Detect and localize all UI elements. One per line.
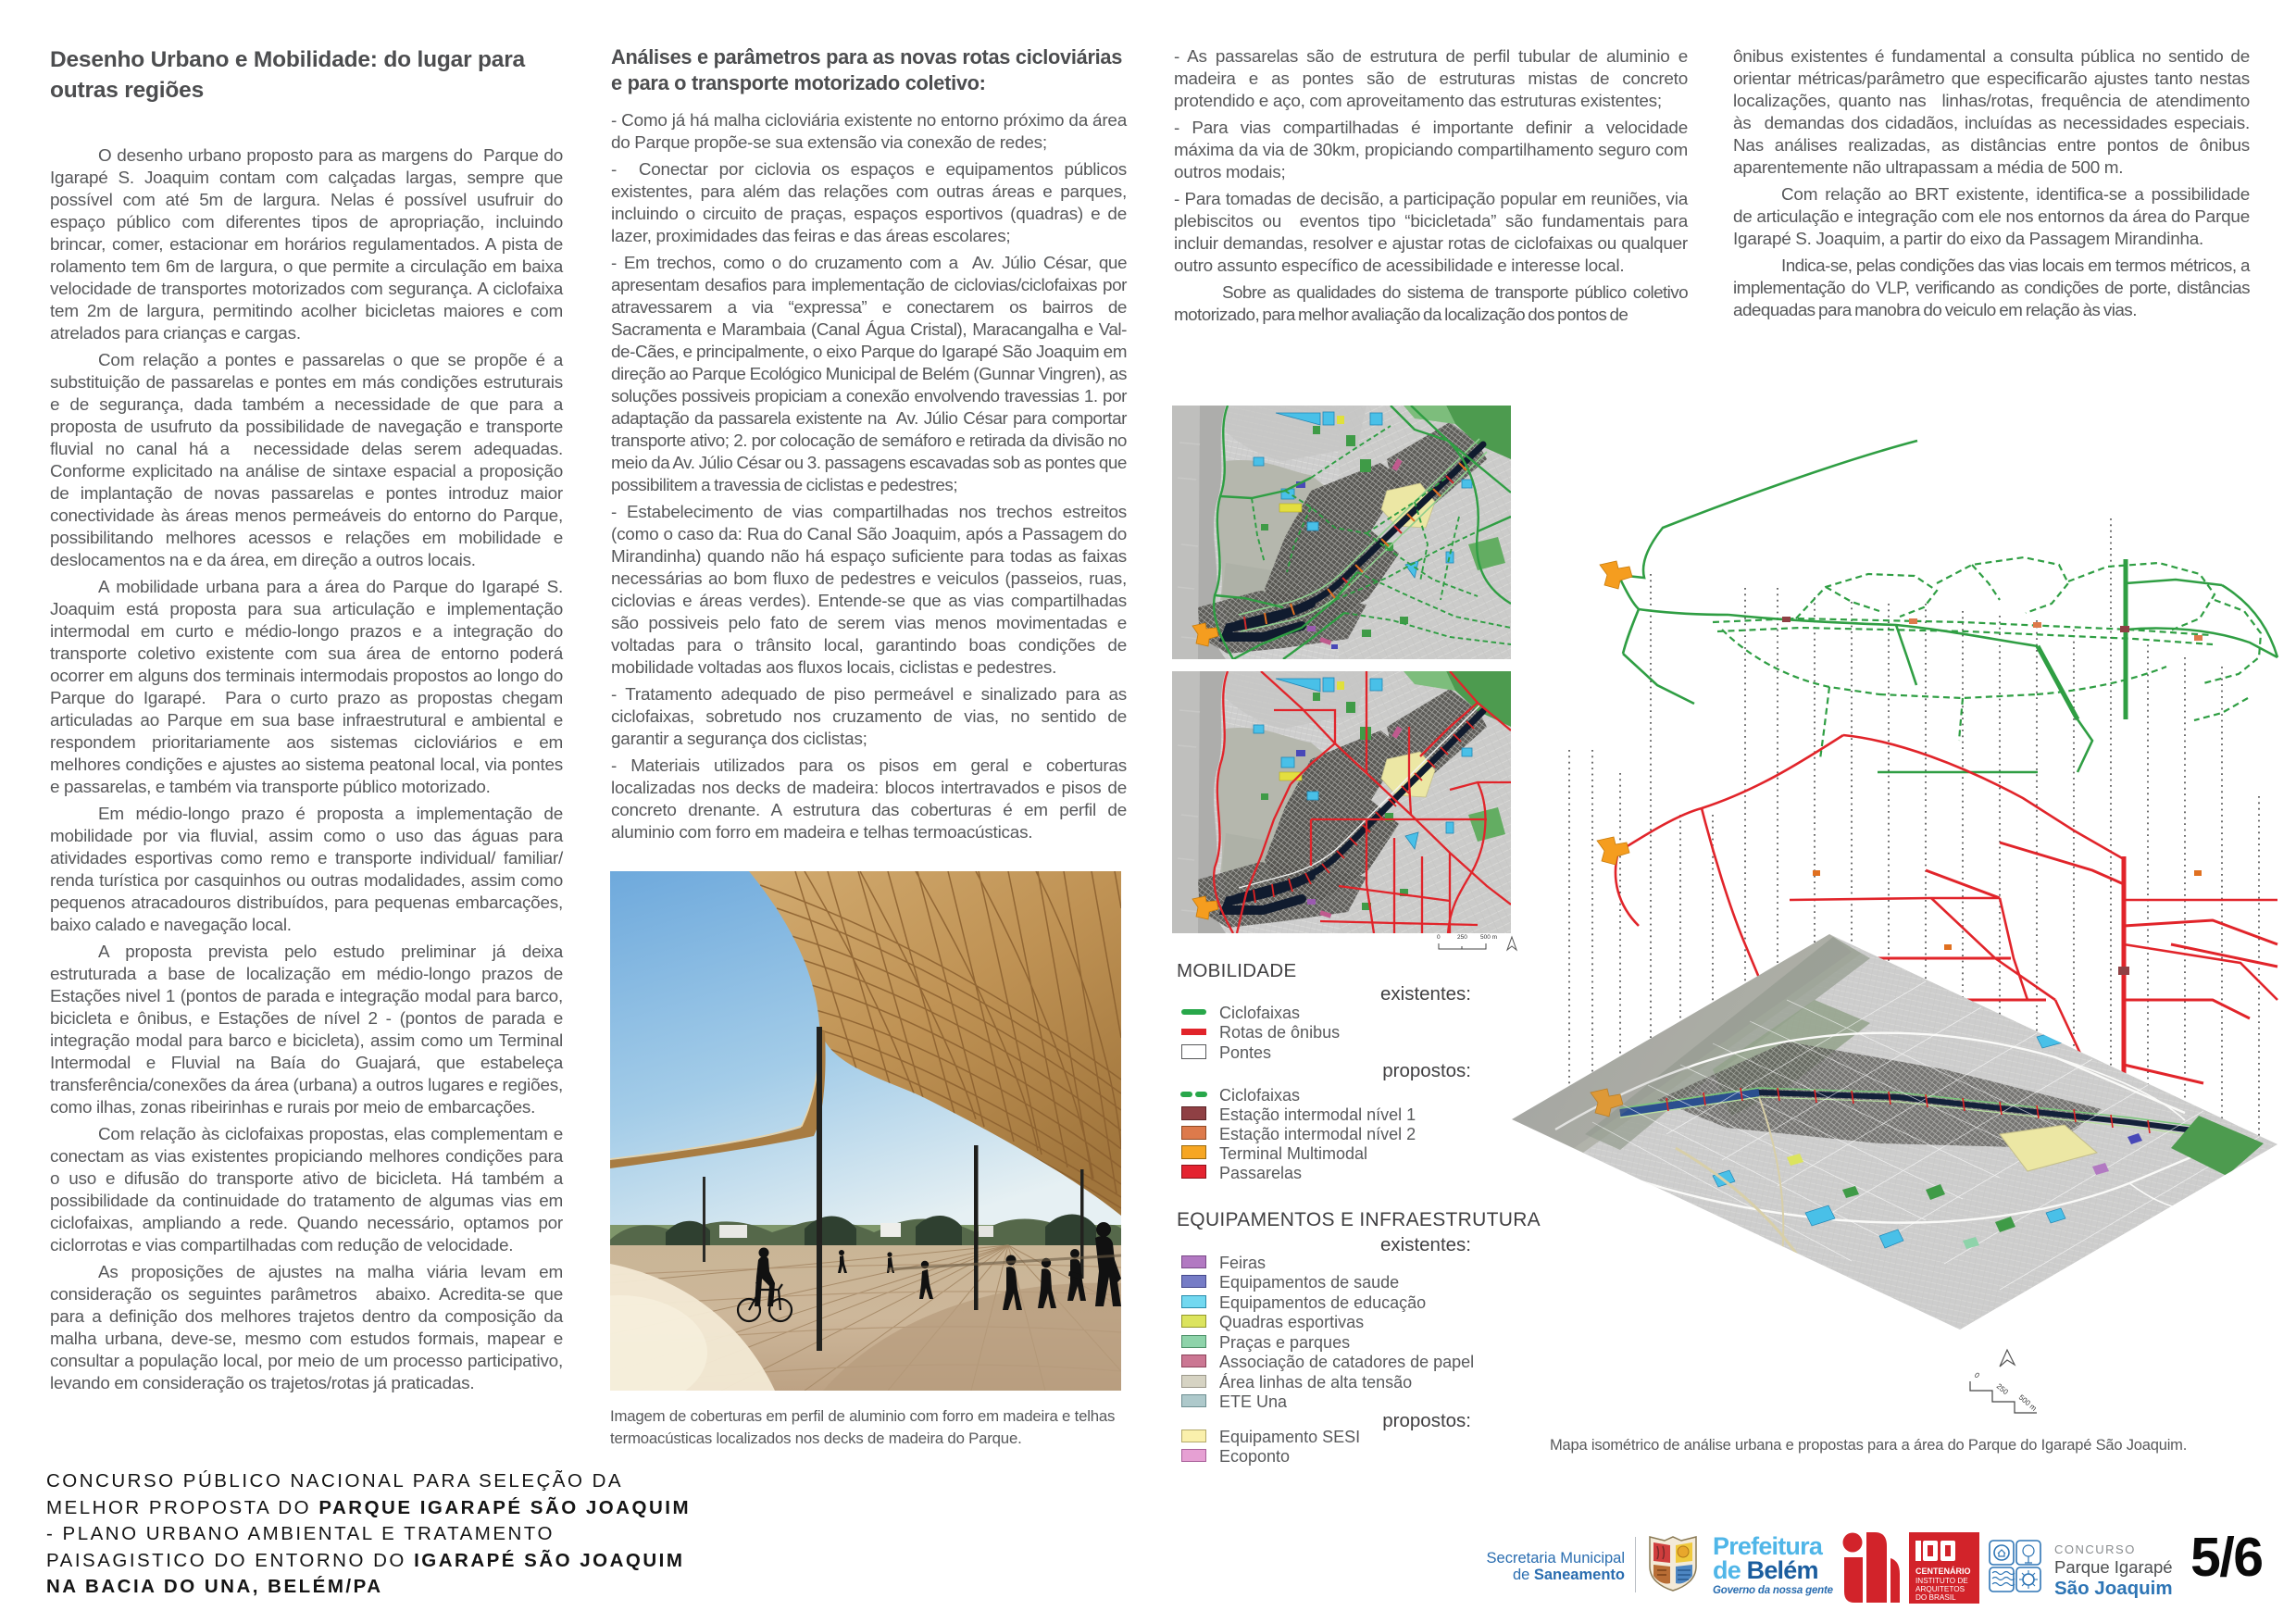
svg-text:0: 0 [1973,1371,1982,1380]
svg-text:DO BRASIL: DO BRASIL [1915,1593,1956,1602]
svg-text:0: 0 [1437,934,1441,941]
svg-text:INSTITUTO DE: INSTITUTO DE [1915,1577,1968,1585]
svg-text:ARQUITETOS: ARQUITETOS [1915,1585,1965,1593]
svg-text:500 m: 500 m [2017,1393,2039,1413]
svg-text:CENTENÁRIO: CENTENÁRIO [1915,1567,1971,1576]
svg-text:250: 250 [1457,934,1467,941]
svg-text:250: 250 [1995,1382,2010,1397]
